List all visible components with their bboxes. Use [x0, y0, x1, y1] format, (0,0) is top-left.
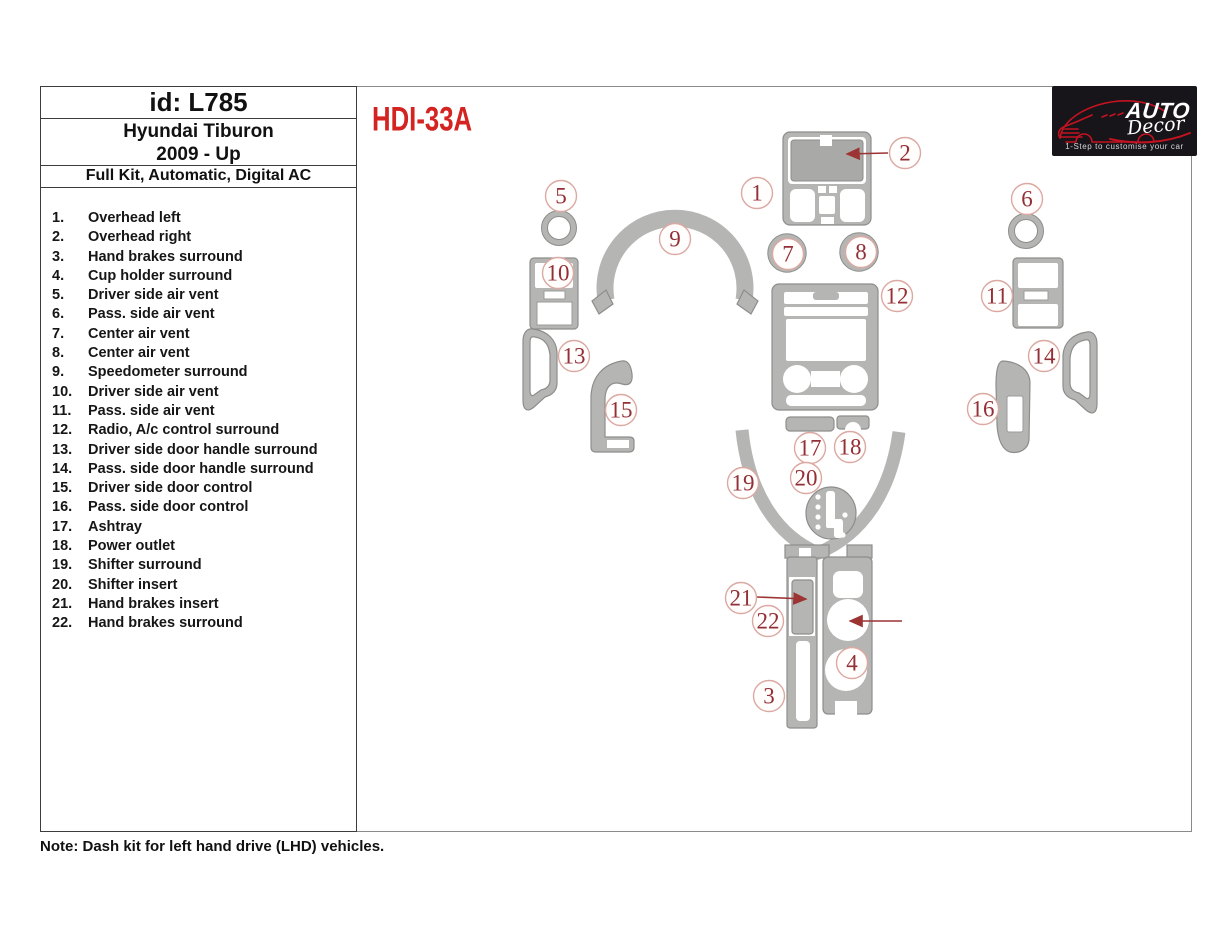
callout-2: 2 — [890, 138, 921, 169]
callout-17: 17 — [795, 433, 826, 464]
callout-10: 10 — [543, 258, 574, 289]
svg-text:16: 16 — [972, 397, 995, 422]
callout-16: 16 — [968, 394, 999, 425]
dash-kit-diagram: 12345678910111213141516171819202122 — [0, 0, 1228, 950]
callout-18: 18 — [835, 432, 866, 463]
part-pass-vent-ring — [1009, 214, 1044, 249]
svg-text:19: 19 — [732, 471, 755, 496]
svg-text:22: 22 — [757, 609, 780, 634]
svg-text:12: 12 — [886, 284, 909, 309]
svg-text:11: 11 — [986, 284, 1008, 309]
svg-text:8: 8 — [855, 240, 867, 265]
page: id: L785 Hyundai Tiburon 2009 - Up Full … — [0, 0, 1228, 950]
svg-text:15: 15 — [610, 398, 633, 423]
callout-22: 22 — [753, 606, 784, 637]
callout-14: 14 — [1029, 341, 1060, 372]
part-radio-surround — [772, 284, 878, 410]
callout-4: 4 — [837, 648, 868, 679]
callout-7: 7 — [773, 239, 804, 270]
callout-arrow — [847, 153, 888, 154]
svg-text:21: 21 — [730, 586, 753, 611]
part-driver-vent-ring — [542, 211, 577, 246]
callout-8: 8 — [846, 237, 877, 268]
svg-text:13: 13 — [563, 344, 586, 369]
part-driver-door-handle — [523, 329, 557, 410]
svg-text:5: 5 — [555, 184, 567, 209]
svg-text:18: 18 — [839, 435, 862, 460]
part-cup-holder — [823, 545, 872, 715]
svg-text:4: 4 — [846, 651, 858, 676]
svg-text:14: 14 — [1033, 344, 1057, 369]
svg-text:7: 7 — [782, 242, 794, 267]
svg-text:9: 9 — [669, 227, 681, 252]
callout-3: 3 — [754, 681, 785, 712]
svg-text:6: 6 — [1021, 187, 1033, 212]
svg-text:10: 10 — [547, 261, 570, 286]
callout-20: 20 — [791, 463, 822, 494]
callout-12: 12 — [882, 281, 913, 312]
svg-text:3: 3 — [763, 684, 775, 709]
part-ashtray — [786, 417, 834, 431]
callout-6: 6 — [1012, 184, 1043, 215]
callout-15: 15 — [606, 395, 637, 426]
callout-9: 9 — [660, 224, 691, 255]
svg-text:20: 20 — [795, 466, 818, 491]
callout-5: 5 — [546, 181, 577, 212]
callout-21: 21 — [726, 583, 757, 614]
callout-1: 1 — [742, 178, 773, 209]
svg-text:2: 2 — [899, 141, 911, 166]
part-pass-door-control — [996, 361, 1030, 452]
svg-text:1: 1 — [751, 181, 763, 206]
callout-19: 19 — [728, 468, 759, 499]
part-shifter-insert — [806, 487, 856, 539]
part-overhead-console — [783, 132, 871, 225]
part-pass-vent-panel — [1013, 258, 1063, 328]
callout-11: 11 — [982, 281, 1013, 312]
part-pass-door-handle — [1063, 332, 1097, 413]
svg-text:17: 17 — [799, 436, 822, 461]
callout-13: 13 — [559, 341, 590, 372]
